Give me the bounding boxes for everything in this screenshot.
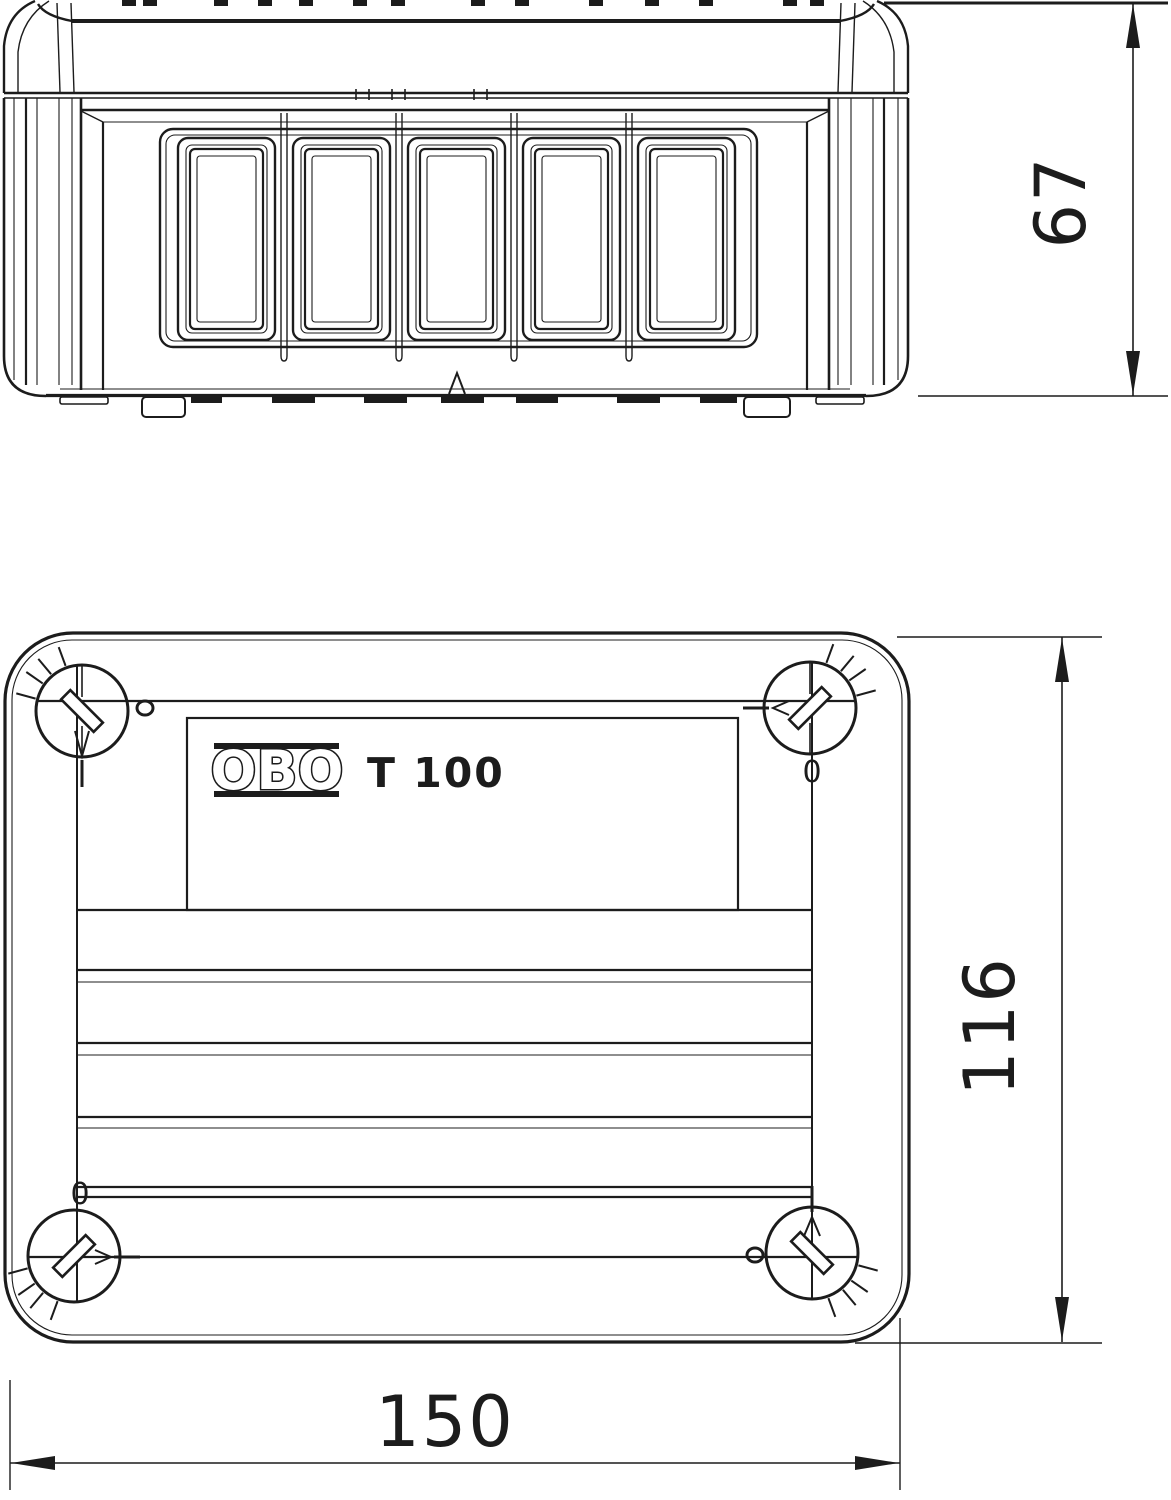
zero-marker-text: 0	[70, 1177, 89, 1212]
screw-top-right: 0	[743, 662, 856, 790]
side-view	[4, 0, 908, 417]
technical-drawing: 0 0 OBO T 100	[0, 0, 1171, 1500]
knockout-5	[638, 138, 735, 340]
dimension-height-67: 67	[884, 3, 1168, 396]
drawing-canvas: 0 0 OBO T 100	[0, 0, 1171, 1500]
zero-marker-ring	[137, 701, 153, 715]
side-knockouts	[178, 138, 735, 340]
side-lid	[4, 0, 908, 100]
dimension-text-depth: 116	[949, 956, 1031, 1096]
zero-marker-ring	[747, 1248, 763, 1262]
knockout-4	[523, 138, 620, 340]
obo-logo-text: OBO	[211, 739, 344, 802]
screw-bottom-left: 0	[28, 1177, 140, 1302]
dimension-depth-116: 116	[855, 637, 1102, 1343]
knockout-1	[178, 138, 275, 340]
dimension-width-150: 150	[10, 1318, 900, 1490]
plan-view: 0 0 OBO T 100	[5, 633, 909, 1342]
zero-marker-text: 0	[802, 755, 821, 790]
plan-outer-outline	[5, 633, 909, 1342]
obo-logo: OBO	[211, 739, 344, 802]
screw-top-left	[36, 665, 153, 787]
plan-inner-outline	[12, 640, 902, 1335]
dimension-text-width: 150	[375, 1381, 515, 1463]
screw-bottom-right	[747, 1186, 858, 1299]
knockout-2	[293, 138, 390, 340]
side-body	[4, 98, 908, 396]
knockout-3	[408, 138, 505, 340]
lid-surface-ribs	[77, 910, 812, 1197]
side-lid-top-marks	[122, 0, 824, 6]
side-center-mark	[449, 373, 465, 394]
label-area: OBO T 100	[187, 718, 738, 910]
side-feet	[60, 397, 864, 417]
product-label: T 100	[367, 749, 505, 797]
side-knockout-window	[160, 113, 757, 361]
dimension-text-height: 67	[1020, 155, 1102, 248]
pointer-triangle	[773, 701, 789, 715]
